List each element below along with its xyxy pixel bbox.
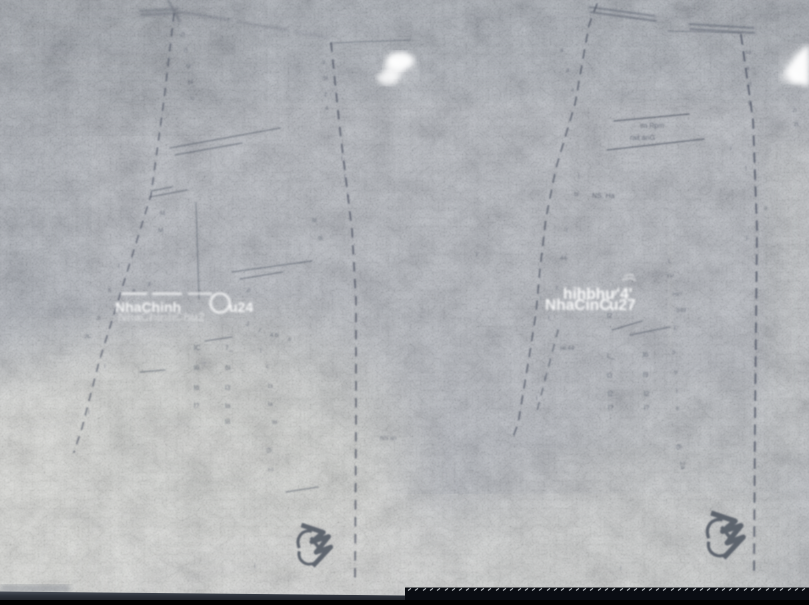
svg-text:im Rpm: im Rpm bbox=[640, 123, 664, 130]
svg-text:4 b: 4 b bbox=[270, 333, 279, 339]
svg-text:lo: lo bbox=[190, 96, 195, 102]
svg-text:l: l bbox=[674, 326, 675, 332]
svg-text:5l: 5l bbox=[323, 76, 328, 82]
svg-text:2a: 2a bbox=[678, 461, 686, 470]
svg-text:u27: u27 bbox=[609, 297, 636, 314]
svg-text:l: l bbox=[104, 364, 105, 370]
svg-text:l: l bbox=[745, 166, 746, 172]
svg-text:l?: l? bbox=[608, 405, 614, 412]
svg-text:M: M bbox=[160, 211, 165, 217]
svg-text:la: la bbox=[225, 403, 231, 410]
svg-text:l: l bbox=[578, 174, 579, 180]
svg-text:lB: lB bbox=[272, 420, 277, 426]
svg-text:l: l bbox=[676, 389, 677, 395]
svg-text:l: l bbox=[540, 296, 541, 302]
svg-text:l6: l6 bbox=[643, 352, 649, 359]
svg-text:sa: sa bbox=[745, 50, 752, 56]
svg-text:YP: YP bbox=[666, 274, 674, 280]
svg-text:2l: 2l bbox=[792, 108, 797, 114]
svg-text:NhaCinC: NhaCinC bbox=[545, 297, 610, 314]
svg-text:l3: l3 bbox=[225, 385, 231, 392]
svg-text:l8: l8 bbox=[318, 236, 323, 242]
svg-text:JC: JC bbox=[84, 334, 92, 340]
svg-text:s: s bbox=[288, 337, 291, 343]
svg-text:M: M bbox=[158, 228, 163, 234]
svg-text:l: l bbox=[730, 146, 731, 152]
svg-text:l: l bbox=[536, 396, 537, 402]
svg-text:lt: lt bbox=[108, 288, 111, 294]
svg-text:z: z bbox=[324, 92, 327, 98]
svg-text:sl: sl bbox=[186, 64, 190, 70]
svg-text:l: l bbox=[476, 252, 477, 258]
svg-text:3l: 3l bbox=[96, 316, 101, 322]
svg-text:l: l bbox=[566, 228, 567, 234]
svg-text:c: c bbox=[266, 364, 269, 370]
svg-text:l9: l9 bbox=[643, 372, 649, 379]
svg-text:zl: zl bbox=[747, 82, 751, 88]
svg-text:l6: l6 bbox=[194, 365, 200, 372]
svg-text:rait anG: rait anG bbox=[630, 135, 655, 142]
svg-text:2l: 2l bbox=[246, 288, 251, 294]
svg-text:6l: 6l bbox=[574, 192, 579, 198]
svg-text:l: l bbox=[746, 236, 747, 242]
svg-text:l3: l3 bbox=[607, 373, 613, 380]
svg-text:NS. Ha: NS. Ha bbox=[592, 193, 615, 200]
svg-text:7_: 7_ bbox=[225, 345, 233, 352]
svg-text:l6: l6 bbox=[194, 385, 200, 392]
svg-text:l8: l8 bbox=[225, 419, 231, 426]
svg-text:NhaChinhChu2: NhaChinhChu2 bbox=[118, 310, 205, 324]
svg-text:l3: l3 bbox=[268, 384, 273, 390]
svg-text:349: 349 bbox=[676, 308, 687, 314]
svg-text:l: l bbox=[347, 192, 348, 198]
svg-text:l: l bbox=[341, 156, 342, 162]
svg-text:l: l bbox=[88, 410, 89, 416]
svg-text:l: l bbox=[556, 286, 557, 292]
svg-text:6l: 6l bbox=[188, 80, 193, 86]
svg-text:-: - bbox=[448, 184, 450, 190]
svg-text:L_: L_ bbox=[607, 353, 615, 360]
svg-text:l?: l? bbox=[644, 405, 650, 412]
svg-text:6l: 6l bbox=[225, 365, 231, 372]
svg-text:l: l bbox=[544, 376, 545, 382]
svg-text:l: l bbox=[260, 348, 261, 354]
svg-text:lC: lC bbox=[194, 345, 201, 352]
svg-text:l8: l8 bbox=[312, 218, 317, 224]
svg-text:la: la bbox=[268, 402, 273, 408]
svg-text:44: 44 bbox=[560, 256, 567, 262]
svg-text:l2: l2 bbox=[644, 391, 650, 398]
svg-text:l4l 44: l4l 44 bbox=[560, 346, 575, 352]
svg-text:u24: u24 bbox=[229, 299, 253, 315]
svg-text:7l: 7l bbox=[183, 48, 188, 54]
svg-text:l: l bbox=[548, 316, 549, 322]
svg-text:l: l bbox=[620, 566, 621, 572]
svg-text:il: il bbox=[148, 282, 151, 288]
svg-text:>o?: >o? bbox=[672, 292, 683, 298]
svg-text:l: l bbox=[118, 264, 119, 270]
svg-text:2l: 2l bbox=[180, 32, 185, 38]
svg-text:l2: l2 bbox=[607, 313, 613, 320]
svg-text:NS an: NS an bbox=[380, 436, 397, 442]
svg-text:l2: l2 bbox=[608, 391, 614, 398]
svg-text:g: g bbox=[748, 100, 751, 106]
svg-text:l: l bbox=[344, 174, 345, 180]
svg-text:l: l bbox=[254, 564, 255, 570]
svg-text:l?: l? bbox=[194, 403, 200, 410]
svg-text:zl: zl bbox=[794, 122, 798, 128]
